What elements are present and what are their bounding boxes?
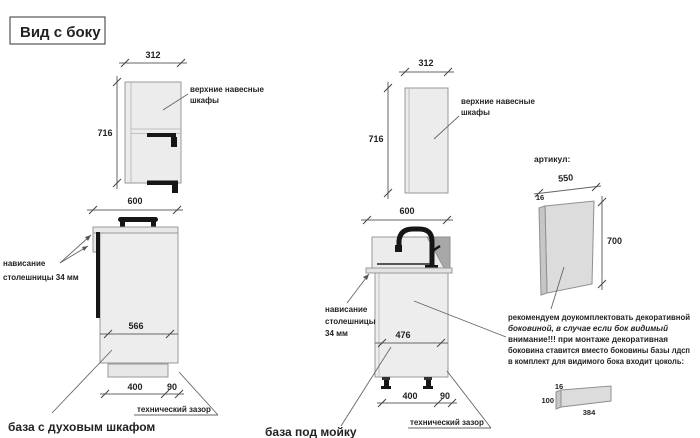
- oven-handle-bar: [96, 232, 100, 318]
- svg-text:верхние навесные: верхние навесные: [190, 85, 264, 94]
- dim-value: 716: [97, 128, 112, 138]
- svg-text:нависание: нависание: [325, 305, 368, 314]
- side-panel-drawing: артикул: 550 16 700: [534, 154, 622, 309]
- note-line-5: в комплект для видимого бока входит цоко…: [508, 357, 684, 366]
- technical-drawing-page: Вид с боку 312 716 верхние навесные шкаф…: [0, 0, 700, 438]
- plinth-face: [561, 386, 611, 407]
- dim-mid-upper-height: 716: [368, 82, 392, 199]
- label-overhang-mid: нависание столешницы 34 мм: [325, 274, 376, 338]
- left-base-cabinet: [93, 217, 178, 377]
- svg-text:384: 384: [583, 408, 596, 417]
- page-title: Вид с боку: [20, 24, 101, 41]
- note-line-3-warning: внимание!!! при монтаже декоративная: [508, 335, 668, 344]
- svg-text:600: 600: [399, 206, 414, 216]
- leg-left: [381, 377, 391, 389]
- note-line-1: рекомендуем доукомплектовать декоративно…: [508, 313, 690, 322]
- dim-panel-height: 700: [598, 196, 622, 290]
- countertop: [93, 227, 178, 233]
- countertop: [366, 268, 452, 273]
- svg-text:технический зазор: технический зазор: [137, 405, 211, 414]
- svg-text:550: 550: [558, 172, 574, 184]
- svg-text:столешницы 34 мм: столешницы 34 мм: [3, 273, 79, 282]
- dim-left-upper-height: 716: [97, 76, 121, 189]
- svg-text:шкафы: шкафы: [190, 96, 219, 105]
- cabinet-body: [375, 273, 448, 377]
- article-header: артикул:: [534, 154, 570, 164]
- note-line-4-warning: боковина ставится вместо боковины базы л…: [508, 346, 690, 355]
- left-upper-cabinet: [125, 82, 181, 193]
- svg-text:база под мойку: база под мойку: [265, 425, 357, 438]
- svg-text:16: 16: [555, 382, 563, 391]
- side-view-drawing: Вид с боку 312 716 верхние навесные шкаф…: [0, 0, 700, 438]
- panel-edge: [539, 206, 547, 295]
- svg-text:верхние навесные: верхние навесные: [461, 97, 535, 106]
- svg-text:90: 90: [440, 391, 450, 401]
- door-handle-profile-bottom: [147, 181, 178, 194]
- plinth-drawing: 16 100 384: [541, 382, 611, 417]
- title-box: Вид с боку: [10, 17, 105, 44]
- mid-upper-cabinet: [405, 88, 448, 193]
- svg-text:100: 100: [541, 396, 554, 405]
- label-mid-upper-cabinets: верхние навесные шкафы: [434, 97, 535, 139]
- dim-mid-base-width: 600: [361, 206, 453, 224]
- svg-text:476: 476: [395, 330, 410, 340]
- svg-text:312: 312: [418, 58, 433, 68]
- label-overhang-left: нависание столешницы 34 мм: [3, 235, 91, 282]
- svg-text:34 мм: 34 мм: [325, 329, 348, 338]
- svg-text:716: 716: [368, 134, 383, 144]
- panel-thickness: 16: [536, 193, 544, 202]
- svg-text:400: 400: [402, 391, 417, 401]
- dim-left-upper-width: 312: [119, 50, 187, 67]
- svg-text:нависание: нависание: [3, 259, 46, 268]
- dim-value: 600: [127, 196, 142, 206]
- svg-text:700: 700: [607, 236, 622, 246]
- mid-base-cabinet: [366, 229, 452, 389]
- svg-text:столешницы: столешницы: [325, 317, 376, 326]
- leg-right: [423, 377, 433, 389]
- top-handle-icon: [118, 217, 158, 228]
- note-block: рекомендуем доукомплектовать декоративно…: [414, 301, 690, 366]
- svg-text:90: 90: [167, 382, 177, 392]
- note-line-2: боковиной, в случае если бок видимый: [508, 324, 668, 333]
- plinth-recess: [108, 364, 168, 377]
- panel-face: [545, 201, 594, 293]
- dim-value: 312: [145, 50, 160, 60]
- svg-text:400: 400: [127, 382, 142, 392]
- svg-text:шкафы: шкафы: [461, 108, 490, 117]
- svg-text:технический зазор: технический зазор: [410, 418, 484, 427]
- dim-mid-upper-width: 312: [399, 58, 454, 76]
- caption-mid-base: база под мойку: [265, 347, 391, 438]
- dim-mid-base-bottom: 400 90: [377, 391, 457, 407]
- dim-value: 566: [128, 321, 143, 331]
- dim-left-base-width: 600: [87, 196, 183, 214]
- svg-text:база с духовым шкафом: база с духовым шкафом: [8, 420, 155, 434]
- plinth-edge: [556, 390, 561, 409]
- cabinet-body: [100, 233, 178, 363]
- dim-left-base-bottom: 400 90: [100, 382, 184, 398]
